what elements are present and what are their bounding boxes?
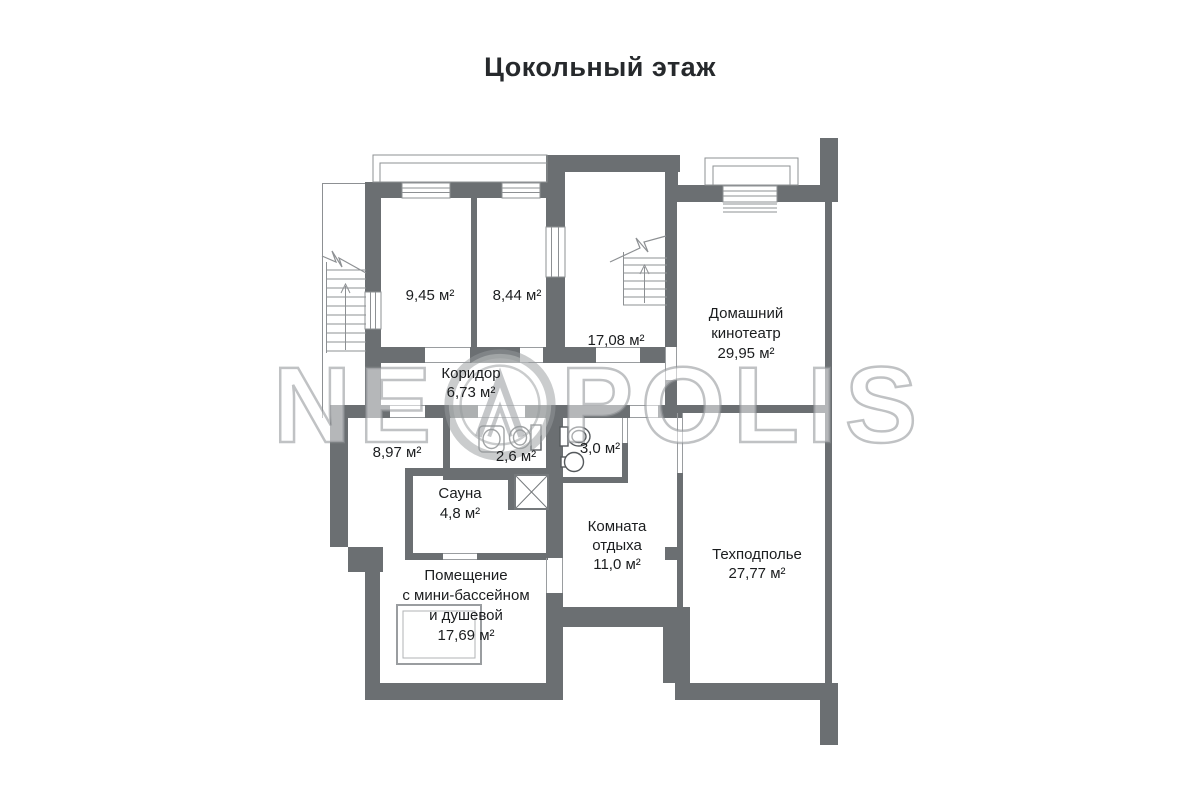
room-area: 17,08 м² [571, 331, 661, 350]
room-label-8-44: 8,44 м² [472, 286, 562, 305]
room-area: 29,95 м² [676, 344, 816, 364]
room-label-home-cinema: Домашний кинотеатр 29,95 м² [676, 304, 816, 364]
room-name: Помещение [366, 566, 566, 586]
interior-stairs [610, 236, 667, 305]
room-label-8-97: 8,97 м² [352, 443, 442, 462]
room-area: 17,69 м² [366, 626, 566, 646]
room-area: 2,6 м² [471, 447, 561, 466]
floor-plan-page: Цокольный этаж [0, 0, 1200, 800]
room-label-corridor: Коридор 6,73 м² [411, 364, 531, 402]
room-name: Домашний [676, 304, 816, 324]
room-area: 3,0 м² [555, 439, 645, 458]
room-name: Сауна [410, 484, 510, 504]
room-area: 27,77 м² [687, 564, 827, 583]
exterior-stairs [322, 183, 366, 418]
room-label-rest-room: Комната отдыха 11,0 м² [557, 517, 677, 574]
room-label-pool-room: Помещение с мини-бассейном и душевой 17,… [366, 566, 566, 646]
room-name: Коридор [411, 364, 531, 383]
room-area: 6,73 м² [411, 383, 531, 402]
room-area: 9,45 м² [385, 286, 475, 305]
room-label-bath-2-6: 2,6 м² [471, 447, 561, 466]
room-label-tech-underfloor: Техподполье 27,77 м² [687, 545, 827, 583]
room-label-17-08: 17,08 м² [571, 331, 661, 350]
room-name: Комната [557, 517, 677, 536]
room-name: кинотеатр [676, 324, 816, 344]
room-area: 8,44 м² [472, 286, 562, 305]
page-title: Цокольный этаж [0, 52, 1200, 83]
vent-shaft [515, 475, 548, 509]
room-name: с мини-бассейном [366, 586, 566, 606]
room-area: 4,8 м² [410, 504, 510, 524]
room-label-9-45: 9,45 м² [385, 286, 475, 305]
room-area: 8,97 м² [352, 443, 442, 462]
room-name: Техподполье [687, 545, 827, 564]
room-area: 11,0 м² [557, 555, 677, 574]
floor-plan-drawing [0, 0, 1200, 800]
room-name: и душевой [366, 606, 566, 626]
room-label-bath-3-0: 3,0 м² [555, 439, 645, 458]
room-name: отдыха [557, 536, 677, 555]
room-label-sauna: Сауна 4,8 м² [410, 484, 510, 524]
